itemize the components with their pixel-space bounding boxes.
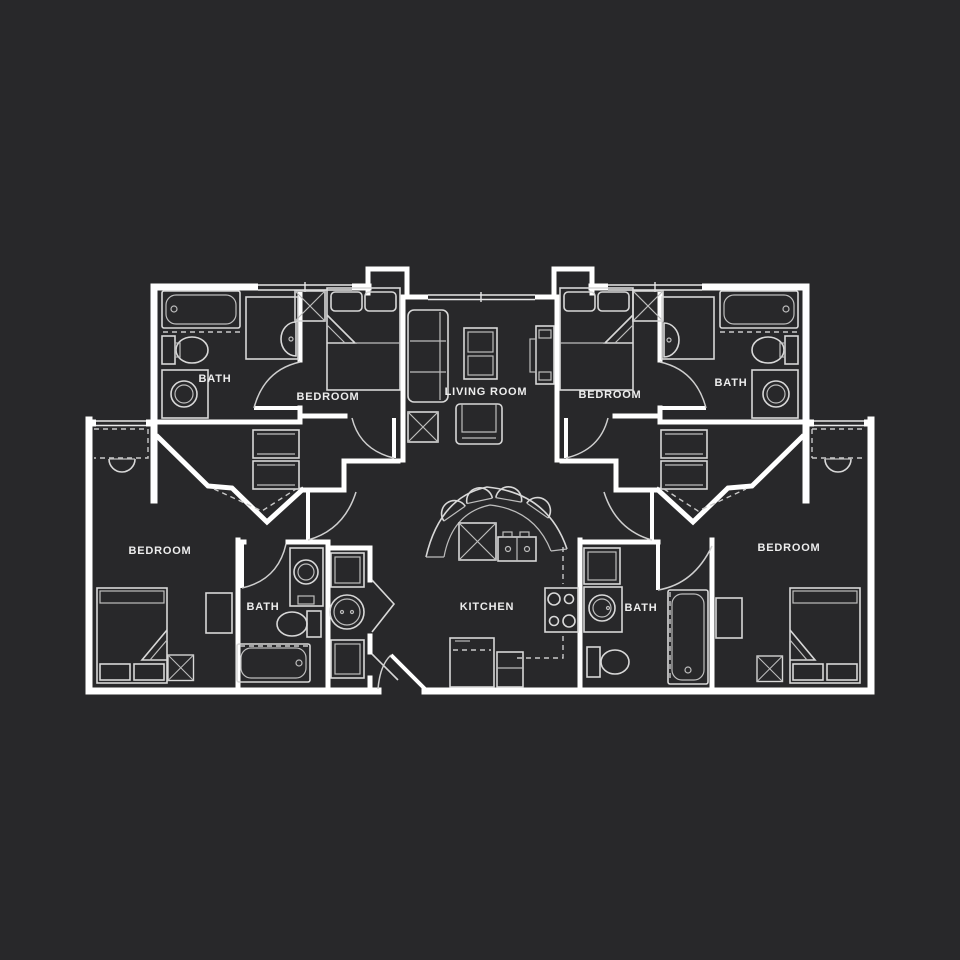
window-left-wing [96, 418, 146, 428]
closet-icon [757, 656, 783, 682]
fridge-icon [450, 638, 494, 687]
bathtub-icon [668, 590, 708, 684]
vanity-sink-icon [246, 297, 298, 359]
door-entry [378, 655, 425, 689]
door-lower-right-bedroom [604, 492, 652, 540]
chair-icon [109, 459, 135, 472]
toilet-icon [277, 611, 321, 637]
door-lower-left-bedroom [308, 492, 356, 540]
kitchen-sink-icon [498, 532, 536, 561]
floor-mat-icon [408, 412, 438, 442]
room-label-living-room: LIVING ROOM [445, 386, 528, 398]
room-labels: BATH BEDROOM LIVING ROOM BEDROOM BATH BE… [128, 373, 820, 614]
bed-icon [790, 588, 860, 683]
bathtub-icon [720, 291, 798, 332]
door-upper-right-bedroom [566, 418, 608, 458]
washer-icon [584, 587, 622, 632]
bed-icon [560, 288, 633, 390]
window-right-wing [814, 418, 864, 428]
bath-upper-left-fixtures [162, 291, 298, 418]
water-heater-icon [330, 595, 364, 629]
vanity-sink-icon [662, 297, 714, 359]
stool-icon [496, 485, 524, 502]
armchair-icon [456, 404, 502, 444]
room-label-bedroom-upper-right: BEDROOM [578, 389, 641, 401]
toilet-icon [162, 336, 208, 364]
kitchen-fixtures [426, 485, 578, 687]
bath-lower-right-fixtures [584, 548, 708, 684]
floor-plan-svg: BATH BEDROOM LIVING ROOM BEDROOM BATH BE… [0, 0, 960, 960]
window-living-room [428, 292, 535, 302]
bedroom-lower-right-fixtures [716, 588, 860, 683]
bed-icon [97, 588, 167, 683]
living-room-fixtures [408, 310, 554, 444]
closet-icon [168, 655, 194, 681]
floor-plan-image: BATH BEDROOM LIVING ROOM BEDROOM BATH BE… [0, 0, 960, 960]
dresser-icons [253, 430, 299, 489]
dishwasher-icon [459, 523, 496, 560]
room-label-bedroom-lower-right: BEDROOM [757, 542, 820, 554]
room-label-bedroom-upper-left: BEDROOM [296, 391, 359, 403]
door-upper-left-bedroom [352, 418, 394, 458]
door-upper-right-bath [660, 362, 706, 408]
cabinet-icon [584, 548, 620, 584]
room-label-bath-lower-right: BATH [625, 602, 658, 614]
door-utility-bifold [372, 580, 398, 680]
washer-icon [290, 548, 323, 606]
bathtub-icon [162, 291, 240, 332]
dresser-icons [661, 430, 707, 489]
utility-closet-fixtures [330, 553, 364, 678]
sofa-icon [408, 310, 448, 402]
nightstand-icon [206, 593, 232, 633]
door-upper-left-bath [254, 362, 300, 408]
bath-lower-left-fixtures [237, 548, 364, 682]
stove-icon [545, 588, 578, 632]
room-label-bath-lower-left: BATH [247, 601, 280, 613]
counter-outline [516, 547, 563, 658]
room-label-bath-upper-right: BATH [715, 377, 748, 389]
nightstand-icon [716, 598, 742, 638]
room-label-bath-upper-left: BATH [199, 373, 232, 385]
room-label-kitchen: KITCHEN [460, 601, 515, 613]
coffee-table-icon [464, 328, 497, 379]
windows [96, 281, 864, 428]
doors [242, 362, 712, 689]
stool-icon [436, 495, 465, 521]
toilet-icon [752, 336, 798, 364]
bedroom-lower-left-fixtures [97, 588, 232, 683]
bed-icon [327, 288, 400, 390]
washer-icon [752, 370, 798, 418]
toilet-icon [587, 647, 629, 677]
door-lower-right-bath [658, 544, 712, 590]
desk-nooks [94, 429, 866, 511]
stool-icon [527, 492, 556, 518]
tv-console-icon [530, 326, 554, 384]
cabinet-icon [497, 652, 523, 687]
door-lower-left-bath [242, 544, 286, 588]
bathtub-icon [237, 644, 310, 682]
room-label-bedroom-lower-left: BEDROOM [128, 545, 191, 557]
bath-upper-right-fixtures [662, 291, 798, 418]
stool-icon [464, 485, 492, 503]
chair-icon [825, 459, 851, 472]
